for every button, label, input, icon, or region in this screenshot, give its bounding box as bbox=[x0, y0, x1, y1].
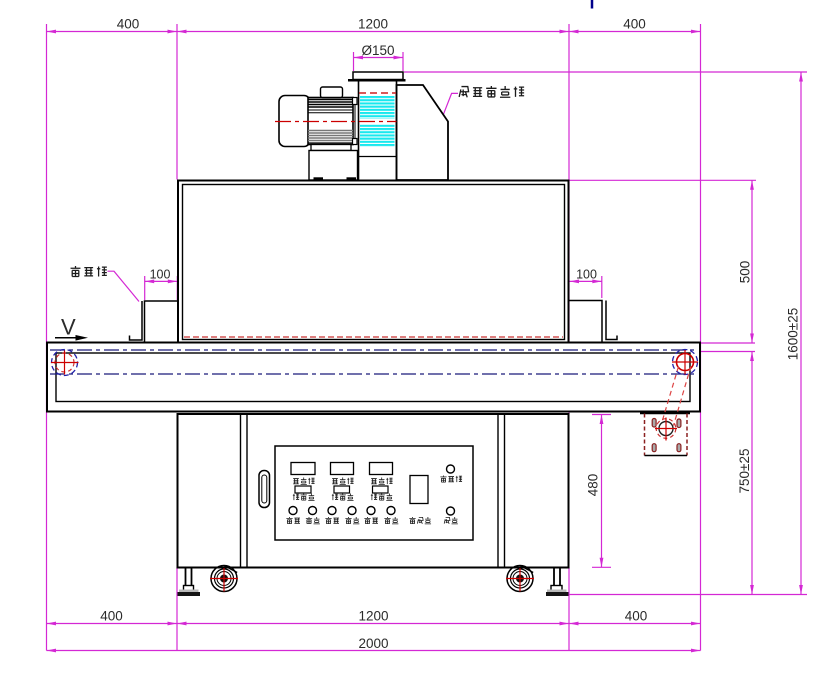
svg-text:V: V bbox=[61, 315, 76, 340]
svg-text:100: 100 bbox=[150, 268, 171, 282]
svg-text:2000: 2000 bbox=[358, 636, 388, 651]
svg-text:400: 400 bbox=[623, 17, 646, 32]
svg-text:750±25: 750±25 bbox=[737, 449, 752, 494]
svg-text:1200: 1200 bbox=[358, 17, 388, 32]
svg-text:100: 100 bbox=[576, 268, 597, 282]
svg-text:Ø150: Ø150 bbox=[361, 43, 394, 58]
svg-text:500: 500 bbox=[738, 261, 753, 284]
svg-text:480: 480 bbox=[586, 474, 601, 497]
svg-text:400: 400 bbox=[100, 609, 123, 624]
svg-text:400: 400 bbox=[117, 17, 140, 32]
svg-text:1600±25: 1600±25 bbox=[786, 308, 801, 360]
svg-text:1200: 1200 bbox=[358, 609, 388, 624]
svg-text:400: 400 bbox=[625, 609, 648, 624]
